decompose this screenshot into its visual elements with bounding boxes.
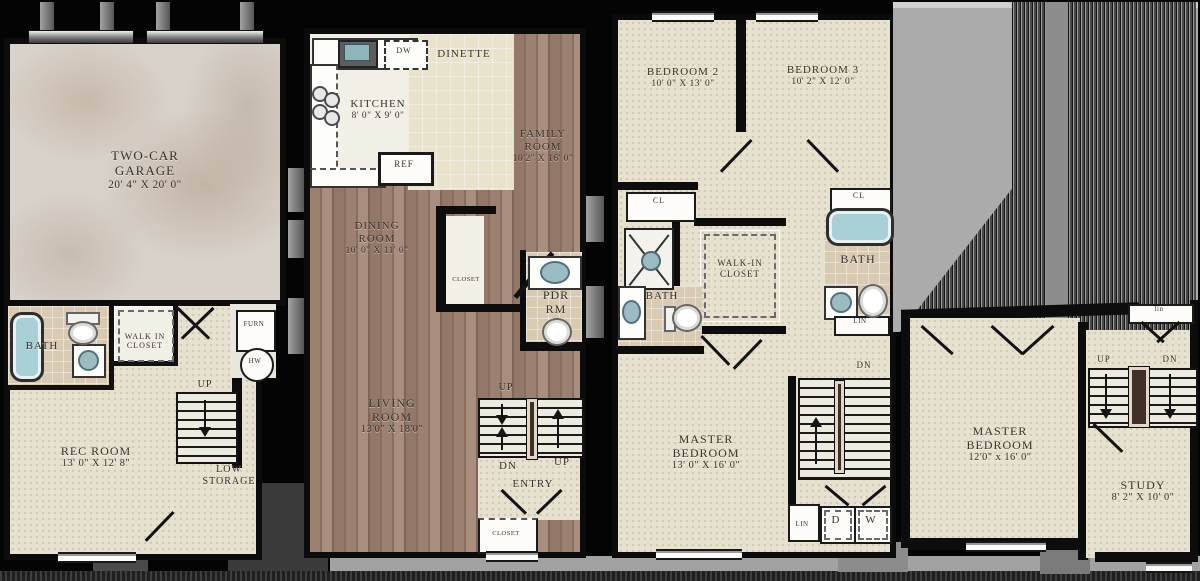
- entry-closet-label: CLOSET: [492, 530, 520, 538]
- sink-basin-icon: [622, 300, 641, 324]
- closet-wall: [436, 206, 496, 214]
- bedroom2-label: BEDROOM 210' 0" X 13' 0": [647, 66, 719, 90]
- basement-window: [58, 552, 136, 563]
- bay-window: [288, 168, 304, 212]
- toilet-icon: [672, 304, 702, 332]
- dining-room-label: DININGROOM10' 0" X 11' 0": [346, 220, 409, 257]
- toilet-icon: [858, 284, 888, 318]
- loft-up-label: UP: [1097, 354, 1111, 365]
- walkin-wall: [694, 218, 786, 226]
- toilet-icon: [68, 321, 98, 345]
- study-label: STUDY8' 2" X 10' 0": [1112, 478, 1175, 504]
- garage-door-header: [28, 30, 134, 44]
- loft-right-wall: [1190, 300, 1198, 562]
- kitchen-sink-basin: [344, 44, 370, 61]
- up-arrow-icon: [810, 418, 822, 466]
- roof-shingle-band: [1068, 2, 1196, 332]
- bay-window: [288, 298, 304, 354]
- dryer-label: D: [832, 514, 841, 527]
- basement-walkin-label: WALK INCLOSET: [125, 332, 166, 351]
- basement-bath-label: BATH: [26, 340, 59, 353]
- hall-closet: [446, 216, 484, 304]
- refrigerator-label: REF: [394, 159, 414, 170]
- sink-basin-icon: [78, 350, 99, 371]
- hall-wall: [618, 182, 698, 190]
- kitchen-counter-bottom: [310, 168, 386, 188]
- stair-rail: [1128, 366, 1150, 428]
- bay-window: [586, 286, 604, 338]
- bedroom3-window: [756, 11, 818, 22]
- sidewalk-strip: [0, 571, 1200, 581]
- master-window: [656, 549, 742, 560]
- bay-window: [586, 196, 604, 242]
- stairs-down-label: DN: [499, 460, 517, 473]
- up-arrow-icon: [552, 410, 564, 450]
- stairs-up-right-label: UP: [554, 456, 570, 469]
- closet-wall: [436, 206, 446, 312]
- bay-window: [288, 220, 304, 258]
- rec-room-label: REC ROOM13' 0" X 12' 8": [61, 444, 131, 470]
- stove-burner-icon: [324, 92, 340, 108]
- roof-valley: [1046, 2, 1068, 332]
- master-bedroom-label: MASTERBEDROOM13' 0" X 16' 0": [672, 432, 740, 472]
- front-door-sill: [486, 551, 538, 562]
- stair-rail: [526, 398, 538, 460]
- powder-room-label: PDRRM: [543, 288, 569, 316]
- stair-rail: [834, 380, 845, 474]
- closet-left-label: CL: [653, 196, 665, 205]
- loft-master-window: [966, 541, 1046, 552]
- loft-linen-label: lin: [1155, 305, 1164, 313]
- stairs-up-label: UP: [499, 382, 514, 394]
- pdr-basin-icon: [540, 261, 570, 284]
- bedroom2-window: [652, 11, 714, 22]
- washer-label: W: [865, 514, 876, 527]
- roof-shingle-band: [1012, 2, 1046, 332]
- closet-wall: [436, 304, 524, 312]
- walkin-wall: [694, 326, 786, 334]
- study-window: [1146, 562, 1192, 573]
- living-room-label: LIVINGROOM13'0" X 18'0": [361, 396, 423, 436]
- dinette-label: DINETTE: [437, 48, 490, 61]
- kitchen-label: KITCHEN8' 0" X 9' 0": [350, 98, 405, 122]
- loft-master-label: MASTERBEDROOM12'0" x 16' 0": [966, 424, 1033, 464]
- closet-right-label: CL: [853, 191, 865, 200]
- garage-label: TWO-CAR GARAGE 20' 4" X 20' 0": [108, 148, 181, 192]
- low-storage-label: LOWSTORAGE: [203, 464, 256, 488]
- linen-right-label: LIN: [853, 317, 866, 325]
- furnace-icon: [236, 310, 276, 352]
- floor-plan-canvas: TWO-CAR GARAGE 20' 4" X 20' 0" BATH WALK…: [0, 0, 1200, 581]
- hall-wall: [618, 346, 704, 354]
- up-arrow-icon: [496, 428, 508, 452]
- bedroom-divider-wall: [736, 20, 746, 132]
- stair-wall: [788, 376, 796, 506]
- down-arrow-icon: [1164, 372, 1176, 418]
- bath-right-label: BATH: [840, 252, 875, 266]
- down-arrow-icon: [1100, 372, 1112, 418]
- bedroom3-label: BEDROOM 310' 2" X 12' 0": [787, 64, 859, 88]
- loft-down-label: DN: [1163, 354, 1178, 365]
- toilet-icon: [542, 318, 572, 346]
- dishwasher-label: DW: [396, 46, 411, 55]
- basement-stairs-up-label: UP: [198, 379, 213, 391]
- hall-closet-label: CLOSET: [452, 276, 480, 284]
- furnace-label: FURN: [244, 320, 265, 328]
- sink-basin-icon: [830, 292, 852, 313]
- linen-bottom-label: LIN: [795, 520, 808, 528]
- down-arrow-icon: [199, 398, 211, 436]
- stove-burner-icon: [324, 110, 340, 126]
- bathtub-icon: [826, 208, 894, 246]
- garage-door-header: [146, 30, 264, 44]
- water-heater-label: HW: [249, 357, 262, 365]
- study-bottom-wall: [1095, 552, 1198, 562]
- bath-left-label: BATH: [646, 290, 679, 303]
- shower-icon: [624, 228, 674, 290]
- second-stairs-down-label: DN: [857, 360, 872, 371]
- down-arrow-icon: [496, 402, 508, 424]
- loft-left-wall: [901, 316, 910, 548]
- family-room-label: FAMILYROOM10'2" X 16' 0": [513, 128, 573, 165]
- entry-label: ENTRY: [512, 478, 553, 491]
- walkin-closet-label: WALK-INCLOSET: [717, 258, 763, 279]
